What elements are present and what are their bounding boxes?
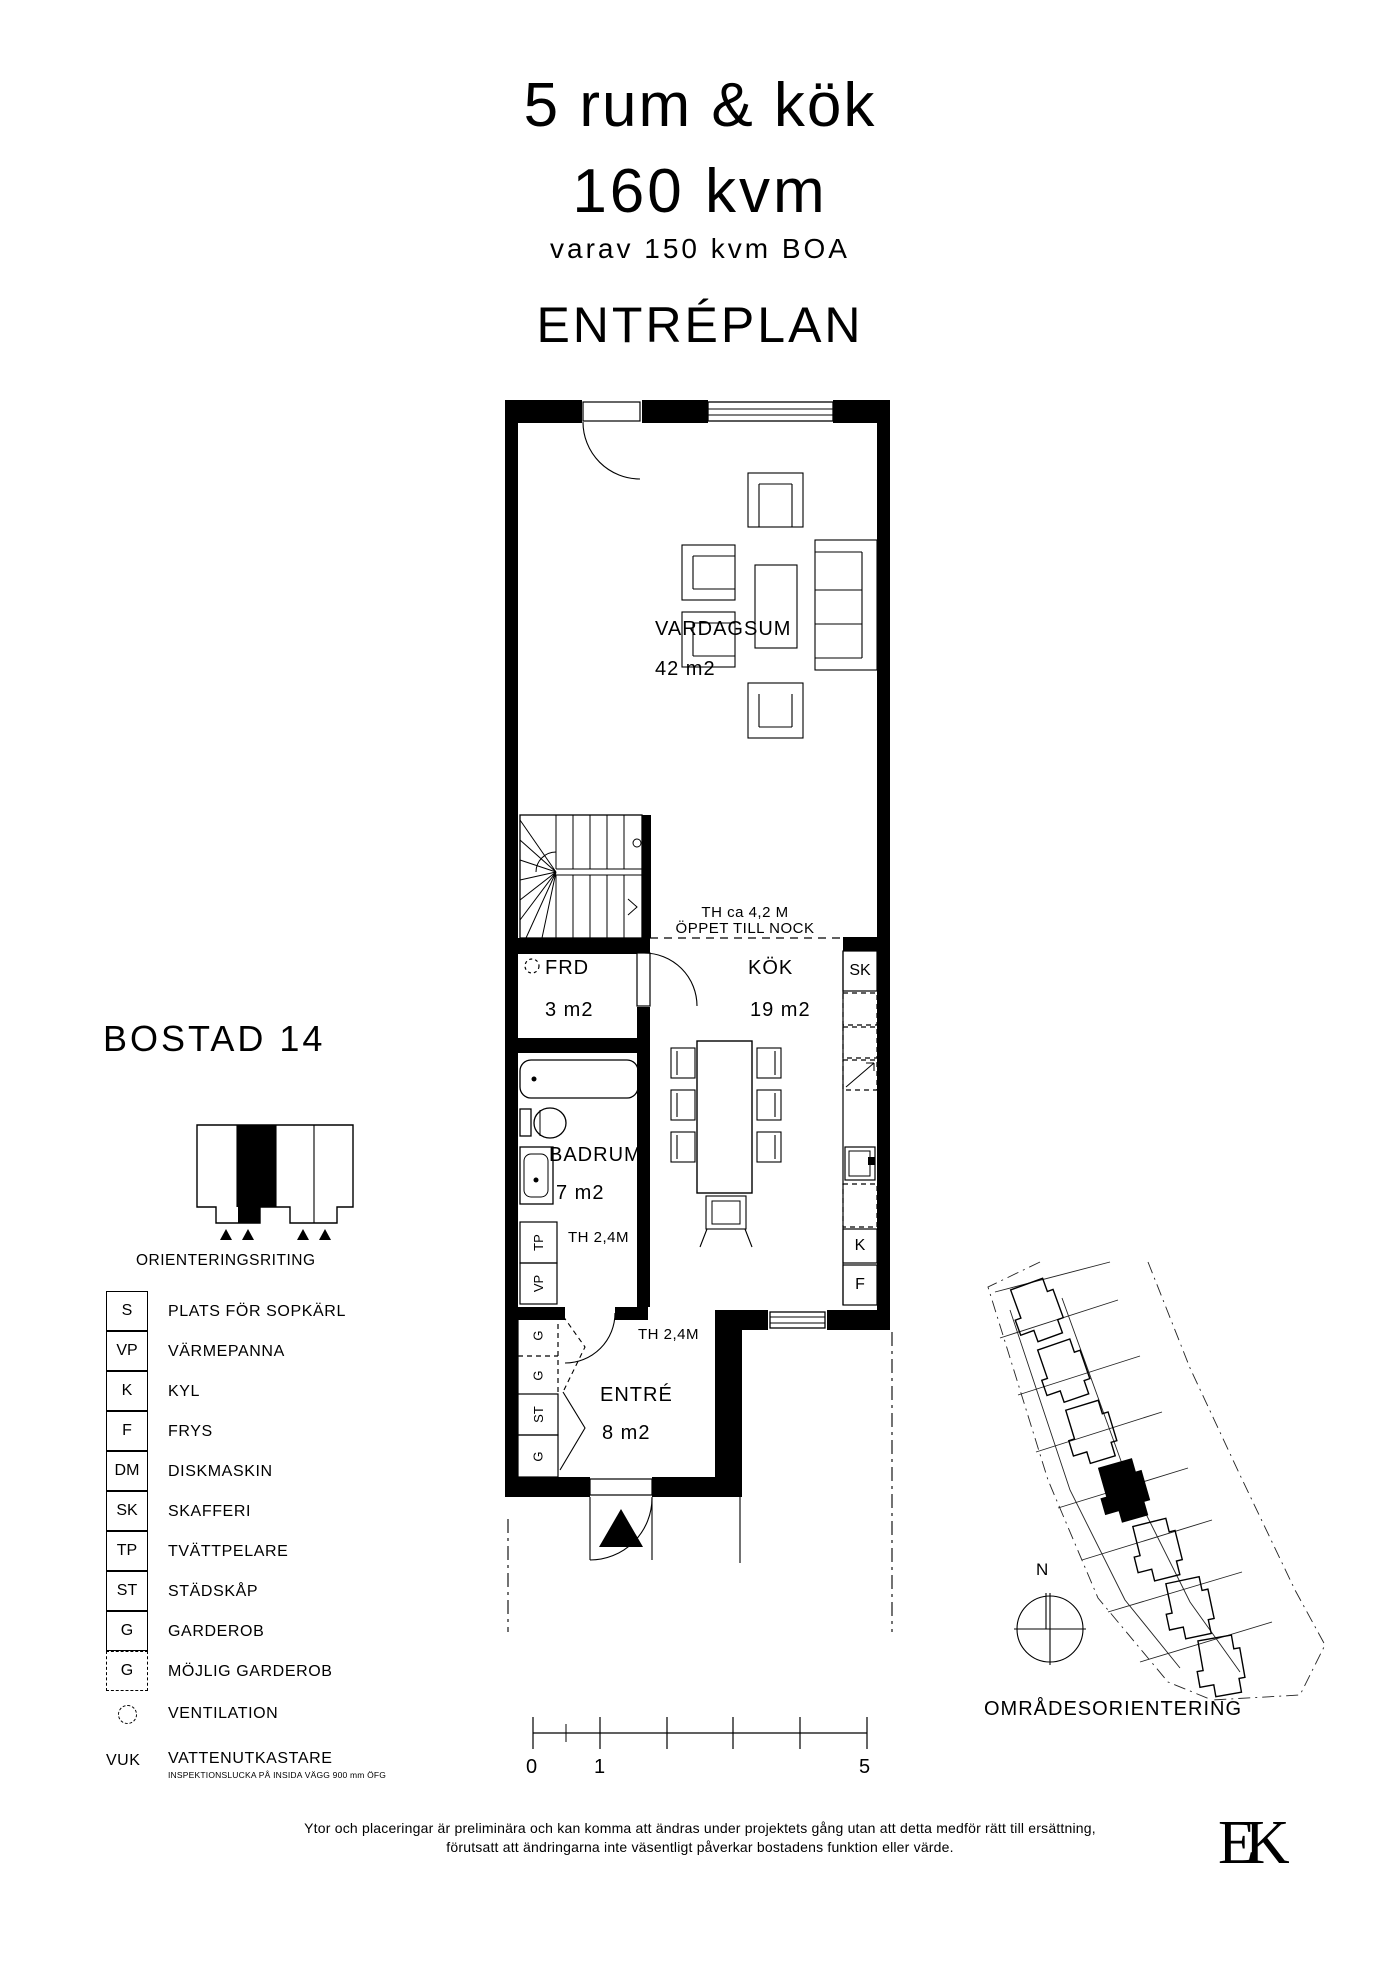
scale-bar [533, 1717, 867, 1749]
legend-row: KKYL [106, 1372, 386, 1412]
legend-code: ST [106, 1571, 148, 1611]
room-label-frd: FRD [545, 957, 589, 980]
legend-code: G [106, 1611, 148, 1651]
legend-row: GMÖJLIG GARDEROB [106, 1652, 386, 1692]
ventilation-legend-icon [118, 1705, 137, 1724]
note-open-to-ridge: ÖPPET TILL NOCK [660, 920, 830, 937]
legend-row: TPTVÄTTPELARE [106, 1532, 386, 1572]
title-area: 160 kvm [0, 156, 1400, 227]
living-room-furniture [682, 473, 877, 738]
orientation-diagram [197, 1125, 353, 1240]
legend-label: STÄDSKÅP [168, 1583, 258, 1601]
legend-row: STSTÄDSKÅP [106, 1572, 386, 1612]
legend-row: VPVÄRMEPANNA [106, 1332, 386, 1372]
room-area-kok: 19 m2 [750, 999, 811, 1022]
window-kitchen [770, 1310, 825, 1330]
window-top [708, 400, 833, 423]
note-th-badrum: TH 2,4M [568, 1229, 629, 1246]
note-ridge-height: TH ca 4,2 M [680, 904, 810, 921]
legend-label: KYL [168, 1383, 200, 1401]
legend-label: GARDEROB [168, 1623, 264, 1641]
legend: SPLATS FÖR SOPKÄRL VPVÄRMEPANNA KKYL FFR… [106, 1292, 386, 1802]
room-label-entre: ENTRÉ [600, 1384, 673, 1407]
legend-row-ventilation: VENTILATION [106, 1692, 386, 1736]
orientation-caption: ORIENTERINGSRITING [136, 1252, 316, 1270]
site-plan [988, 1262, 1325, 1700]
entrance-arrows [220, 1229, 331, 1240]
room-area-entre: 8 m2 [602, 1422, 650, 1445]
title-rooms: 5 rum & kök [0, 70, 1400, 141]
dining-furniture [671, 1041, 781, 1247]
tag-f: F [843, 1265, 877, 1305]
legend-row: DMDISKMASKIN [106, 1452, 386, 1492]
highlighted-unit [237, 1125, 276, 1223]
north-label: N [1036, 1560, 1048, 1580]
ventilation-icon [525, 959, 539, 973]
site-houses [1005, 1276, 1247, 1699]
scale-label-1: 1 [594, 1756, 605, 1779]
legend-code: F [106, 1411, 148, 1451]
legend-row: FFRYS [106, 1412, 386, 1452]
legend-code: VP [106, 1331, 148, 1371]
legend-label: VATTENUTKASTARE [168, 1750, 386, 1768]
legend-label: VÄRMEPANNA [168, 1343, 285, 1361]
ek-logo: EK [1218, 1808, 1279, 1879]
compass-icon [1014, 1593, 1086, 1665]
tag-sk: SK [843, 951, 877, 991]
note-th-entre: TH 2,4M [638, 1326, 699, 1343]
legend-code: VUK [106, 1750, 148, 1770]
entrance-arrow-icon [599, 1509, 643, 1547]
tag-st: ST [518, 1394, 558, 1435]
legend-label: MÖJLIG GARDEROB [168, 1663, 333, 1681]
room-label-vardagsrum: VARDAGSUM [655, 618, 791, 641]
room-label-kok: KÖK [748, 957, 793, 980]
door-frd [637, 953, 697, 1006]
legend-label: DISKMASKIN [168, 1463, 273, 1481]
scale-label-0: 0 [526, 1756, 537, 1779]
title-boa: varav 150 kvm BOA [0, 233, 1400, 265]
unit-name: BOSTAD 14 [103, 1018, 325, 1060]
legend-code: TP [106, 1531, 148, 1571]
tag-g-top: G [518, 1315, 558, 1356]
floorplan-page: 5 rum & kök 160 kvm varav 150 kvm BOA EN… [0, 0, 1400, 1980]
legend-label: VENTILATION [168, 1705, 278, 1723]
room-area-badrum: 7 m2 [556, 1182, 604, 1205]
legend-label: TVÄTTPELARE [168, 1543, 288, 1561]
scale-label-5: 5 [859, 1756, 870, 1779]
legend-row: SPLATS FÖR SOPKÄRL [106, 1292, 386, 1332]
legend-code-dashed: G [106, 1651, 148, 1691]
legend-code: SK [106, 1491, 148, 1531]
stairs [520, 815, 642, 938]
title-floor: ENTRÉPLAN [0, 296, 1400, 354]
legend-label: SKAFFERI [168, 1503, 251, 1521]
legend-row: SKSKAFFERI [106, 1492, 386, 1532]
legend-note: INSPEKTIONSLUCKA PÅ INSIDA VÄGG 900 mm Ö… [168, 1770, 386, 1780]
tag-g-mid: G [518, 1356, 558, 1394]
door-entrance [590, 1478, 652, 1560]
disclaimer-line2: förutsatt att ändringarna inte väsentlig… [0, 1839, 1400, 1855]
tag-vp: VP [520, 1263, 557, 1304]
tag-k: K [843, 1229, 877, 1263]
legend-label: FRYS [168, 1423, 213, 1441]
legend-code: S [106, 1291, 148, 1331]
room-label-badrum: BADRUM [549, 1144, 642, 1167]
site-house-highlighted [1093, 1457, 1153, 1525]
room-area-vardagsrum: 42 m2 [655, 658, 716, 681]
legend-label: PLATS FÖR SOPKÄRL [168, 1303, 346, 1321]
legend-code: K [106, 1371, 148, 1411]
tag-tp: TP [520, 1222, 557, 1263]
tag-g-bot: G [518, 1435, 558, 1477]
siteplan-caption: OMRÅDESORIENTERING [984, 1698, 1242, 1721]
disclaimer-line1: Ytor och placeringar är preliminära och … [0, 1820, 1400, 1836]
legend-row: GGARDEROB [106, 1612, 386, 1652]
legend-row-vuk: VUK VATTENUTKASTARE INSPEKTIONSLUCKA PÅ … [106, 1750, 386, 1802]
room-area-frd: 3 m2 [545, 999, 593, 1022]
door-top [583, 401, 641, 479]
legend-code: DM [106, 1451, 148, 1491]
